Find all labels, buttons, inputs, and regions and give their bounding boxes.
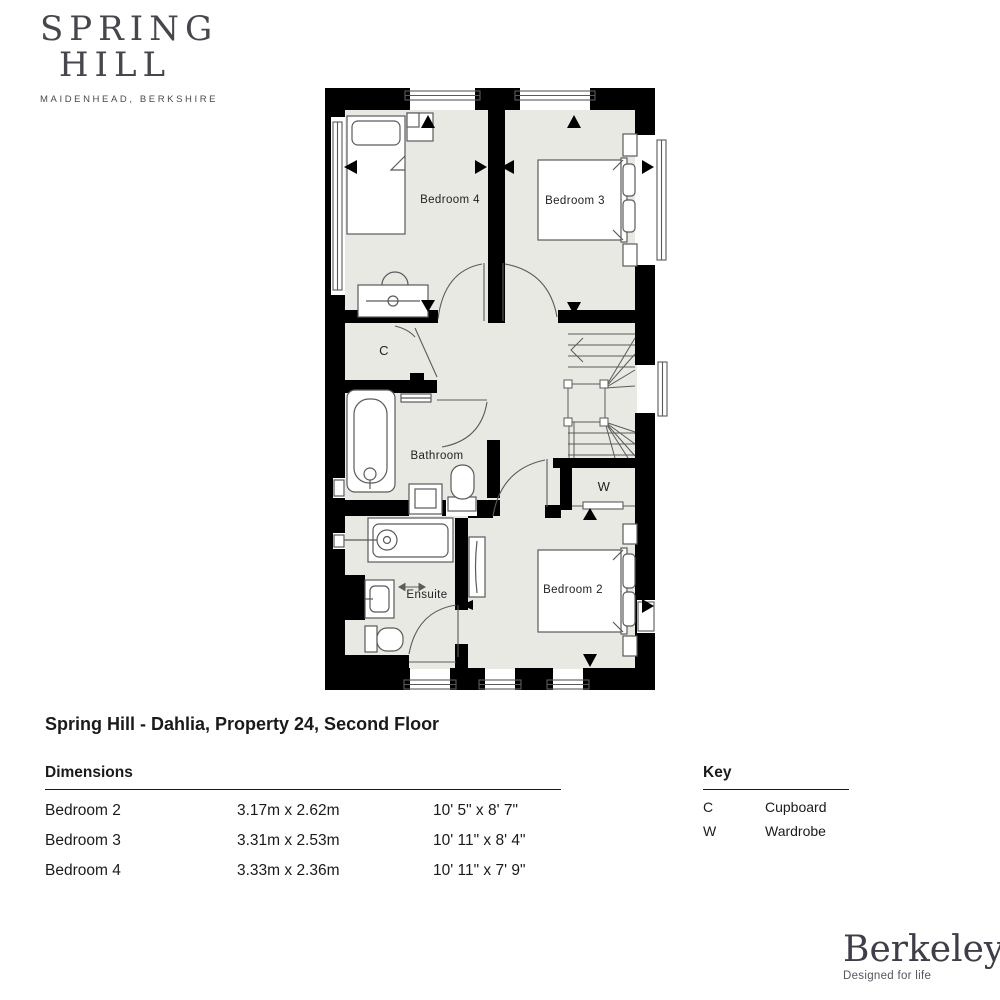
toilet-bowl <box>451 465 474 499</box>
pillow <box>623 164 635 196</box>
bedside-table <box>623 134 637 156</box>
page-title: Spring Hill - Dahlia, Property 24, Secon… <box>45 714 439 735</box>
key-rows: C Cupboard W Wardrobe <box>703 795 849 843</box>
imperial-size: 10' 5" x 8' 7" <box>433 802 561 820</box>
key-section: Key C Cupboard W Wardrobe <box>703 764 849 843</box>
spring-hill-logo: SPRING HILL MAIDENHEAD, BERKSHIRE <box>40 12 240 105</box>
dimensions-heading: Dimensions <box>45 764 561 790</box>
page: SPRING HILL MAIDENHEAD, BERKSHIRE <box>0 0 1000 1000</box>
room-name: Bedroom 2 <box>45 802 237 820</box>
key-row: C Cupboard <box>703 795 849 819</box>
key-row: W Wardrobe <box>703 819 849 843</box>
metric-size: 3.17m x 2.62m <box>237 802 433 820</box>
pillow <box>623 554 635 588</box>
wardrobe-label: W <box>598 479 611 494</box>
ensuite-toilet-bowl <box>377 628 403 651</box>
berkeley-name: Berkeley <box>843 932 1000 968</box>
metric-size: 3.31m x 2.53m <box>237 832 433 850</box>
bedside-table <box>623 636 637 656</box>
logo-line1: SPRING <box>40 12 240 48</box>
room-name: Bedroom 3 <box>45 832 237 850</box>
bath-tap-box <box>334 480 344 496</box>
bedroom4-label: Bedroom 4 <box>420 194 480 206</box>
bedside-table <box>623 524 637 544</box>
ensuite-label: Ensuite <box>406 589 447 601</box>
key-label: Cupboard <box>765 799 849 815</box>
key-heading: Key <box>703 764 849 790</box>
pillow <box>623 592 635 626</box>
floor-plan: Bedroom 4 Bedroom 3 Bedroom 2 Bathroom E… <box>325 88 675 690</box>
bedside-table <box>623 244 637 266</box>
bedroom2-label: Bedroom 2 <box>543 584 603 596</box>
dimensions-section: Dimensions Bedroom 2 3.17m x 2.62m 10' 5… <box>45 764 561 886</box>
logo-tagline: MAIDENHEAD, BERKSHIRE <box>40 94 240 105</box>
logo-line2: HILL <box>40 48 190 82</box>
bedside-shelf-inner <box>407 113 419 127</box>
key-symbol: W <box>703 823 765 839</box>
ensuite-toilet-cistern <box>365 626 377 652</box>
pillow <box>352 121 400 145</box>
dimensions-rows: Bedroom 2 3.17m x 2.62m 10' 5" x 8' 7" B… <box>45 796 561 886</box>
key-symbol: C <box>703 799 765 815</box>
shower-control <box>334 535 344 547</box>
room-name: Bedroom 4 <box>45 862 237 880</box>
imperial-size: 10' 11" x 7' 9" <box>433 862 561 880</box>
bedroom3-label: Bedroom 3 <box>545 195 605 207</box>
imperial-size: 10' 11" x 8' 4" <box>433 832 561 850</box>
berkeley-tagline: Designed for life <box>843 970 1000 982</box>
cupboard-label: C <box>379 343 389 358</box>
table-row: Bedroom 3 3.31m x 2.53m 10' 11" x 8' 4" <box>45 826 561 856</box>
table-row: Bedroom 4 3.33m x 2.36m 10' 11" x 7' 9" <box>45 856 561 886</box>
berkeley-logo: Berkeley Designed for life <box>843 932 1000 982</box>
bathroom-label: Bathroom <box>410 450 463 462</box>
key-label: Wardrobe <box>765 823 849 839</box>
table-row: Bedroom 2 3.17m x 2.62m 10' 5" x 8' 7" <box>45 796 561 826</box>
pillow <box>623 200 635 232</box>
metric-size: 3.33m x 2.36m <box>237 862 433 880</box>
